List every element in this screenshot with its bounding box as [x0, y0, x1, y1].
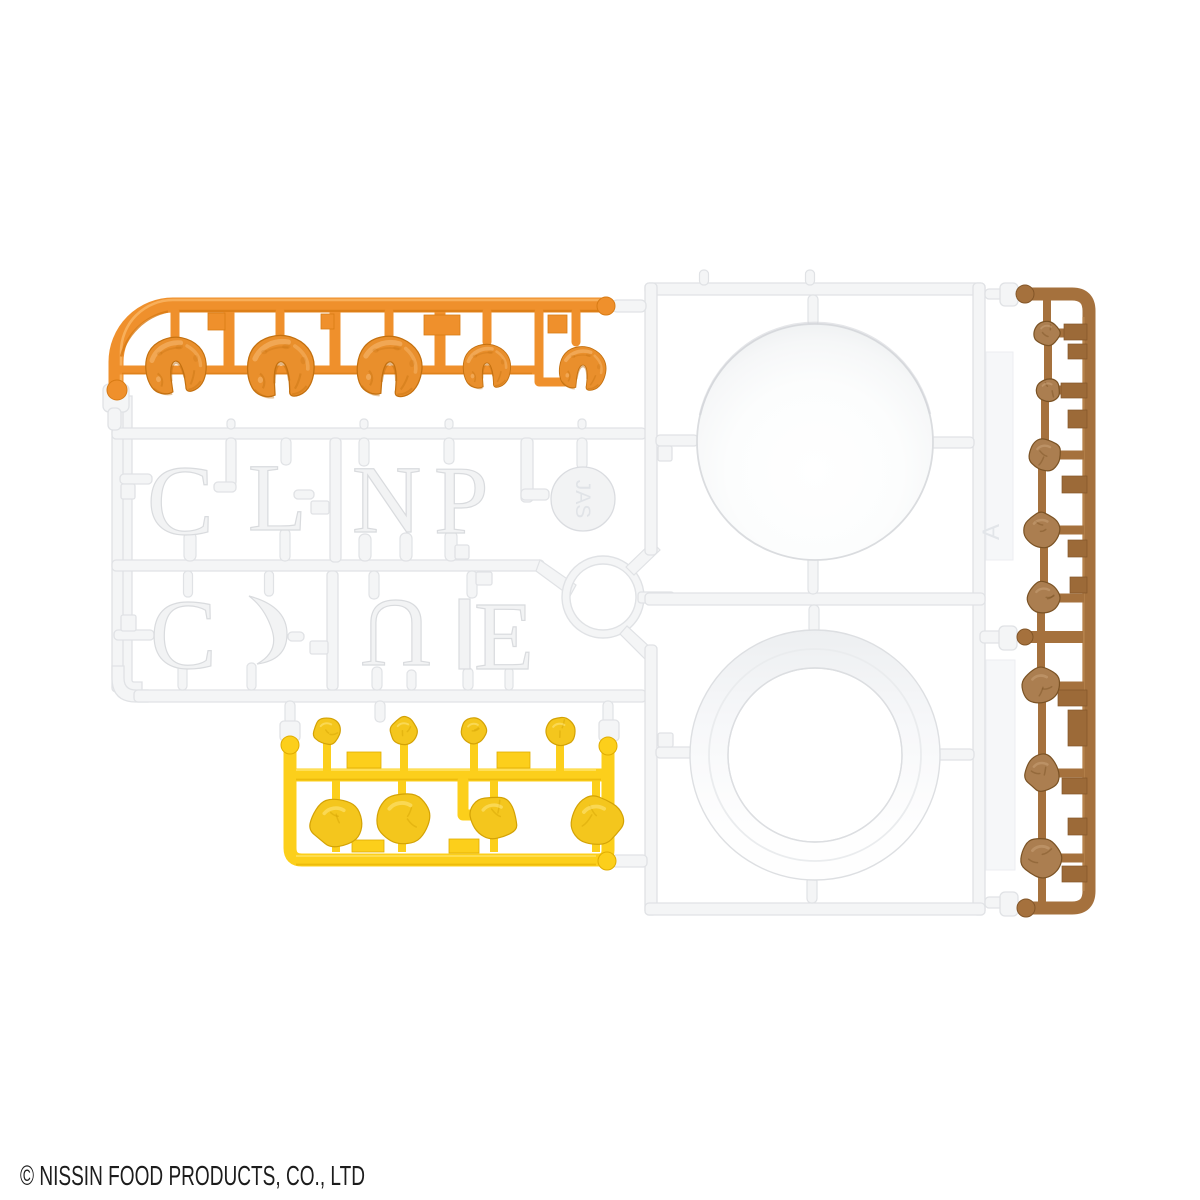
svg-text:P: P: [434, 447, 489, 555]
svg-text:U: U: [361, 579, 432, 687]
svg-text:A: A: [978, 524, 1005, 540]
svg-text:JAS: JAS: [571, 480, 594, 519]
svg-text:C: C: [150, 579, 217, 690]
svg-text:E: E: [474, 583, 534, 691]
svg-text:C: C: [147, 445, 214, 556]
svg-text:L: L: [248, 444, 307, 551]
svg-text:N: N: [352, 446, 421, 553]
svg-text:© NISSIN FOOD PRODUCTS, CO., L: © NISSIN FOOD PRODUCTS, CO., LTD: [20, 1160, 365, 1191]
